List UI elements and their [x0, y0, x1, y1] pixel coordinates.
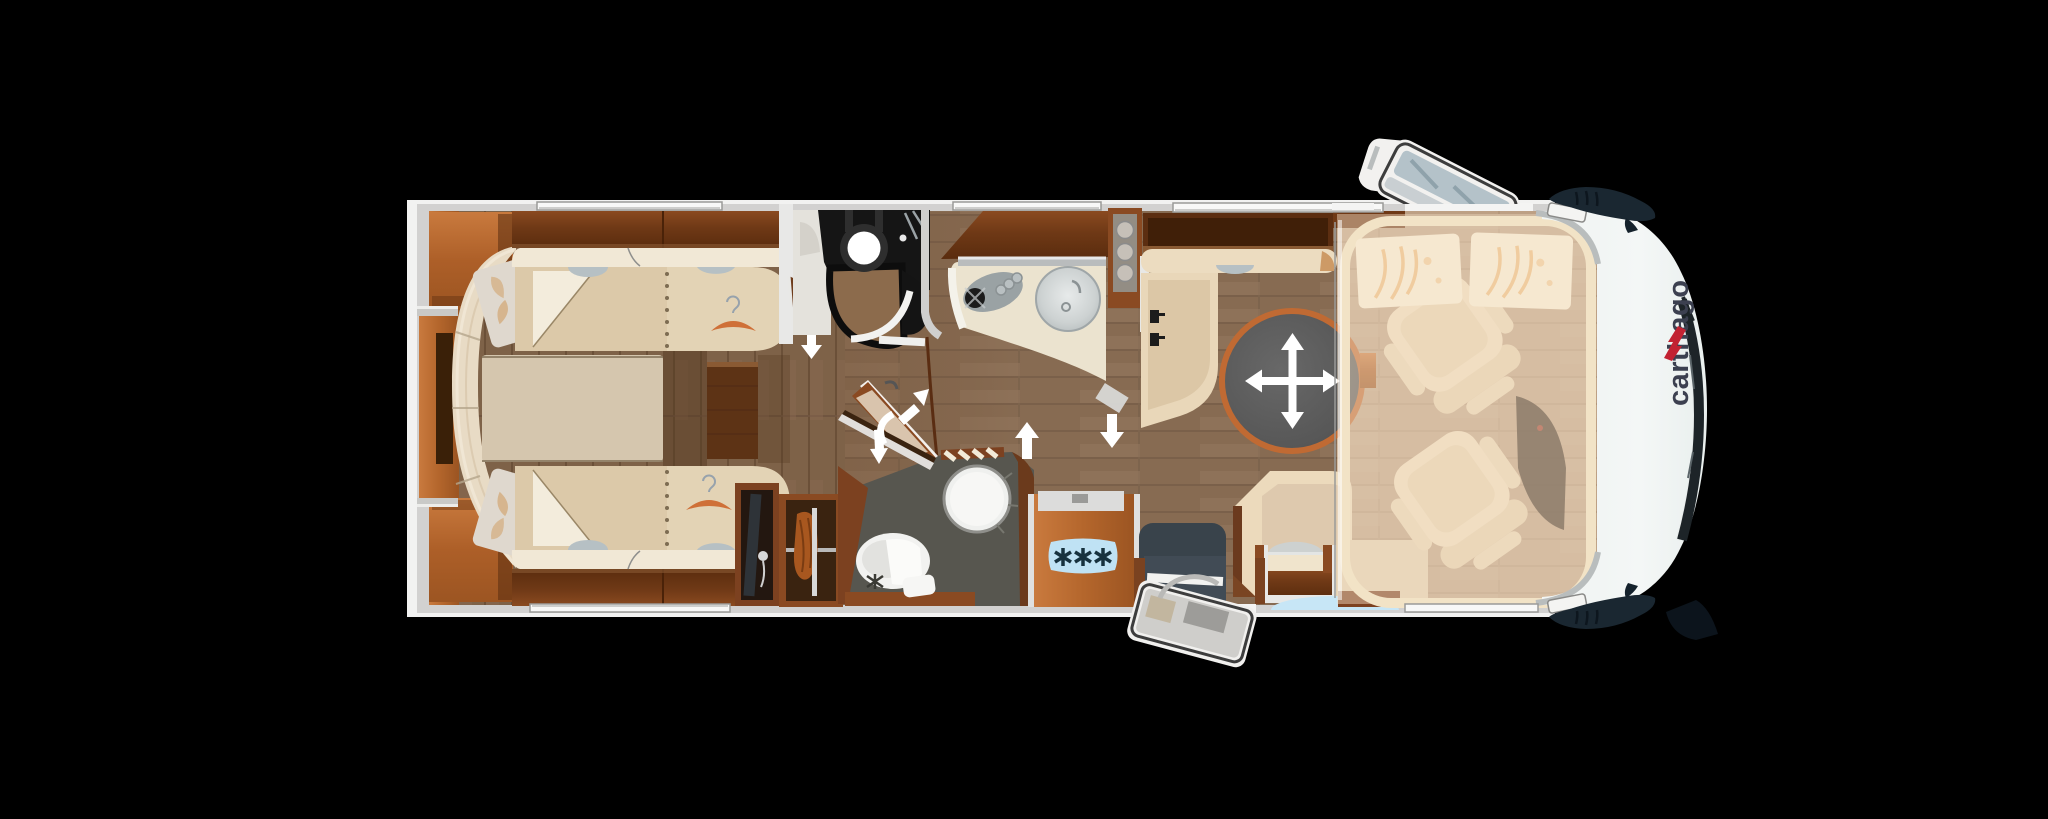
svg-text:carthago: carthago	[1663, 280, 1695, 406]
